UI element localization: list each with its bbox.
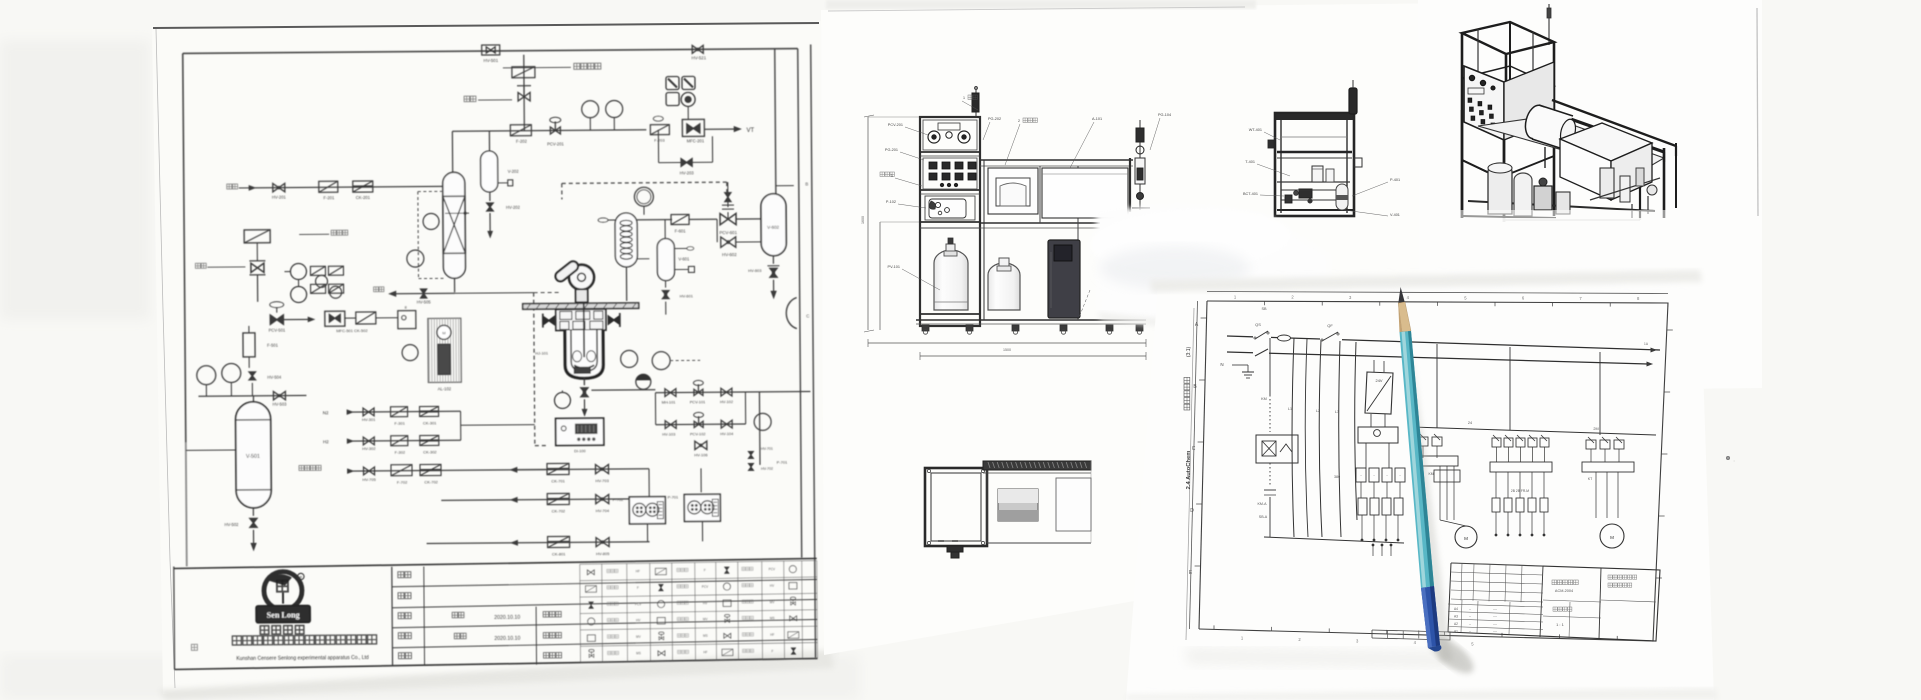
svg-text:MS: MS bbox=[636, 651, 641, 655]
svg-text:HV-702: HV-702 bbox=[761, 467, 773, 471]
svg-text:PCV: PCV bbox=[702, 585, 709, 589]
svg-text:HV-521: HV-521 bbox=[691, 55, 706, 60]
svg-text:QS: QS bbox=[1255, 322, 1261, 327]
svg-text:HV-202: HV-202 bbox=[506, 205, 521, 210]
svg-text:N2: N2 bbox=[323, 410, 329, 415]
svg-text:HV-102: HV-102 bbox=[720, 399, 733, 404]
svg-text:24: 24 bbox=[1468, 421, 1472, 425]
svg-text:CK-801: CK-801 bbox=[552, 551, 566, 556]
svg-text:P-701: P-701 bbox=[777, 460, 788, 465]
svg-text:F-702: F-702 bbox=[397, 480, 408, 485]
svg-text:HV-104: HV-104 bbox=[720, 431, 734, 436]
svg-text:HV-106: HV-106 bbox=[694, 452, 708, 457]
svg-text:HV-602: HV-602 bbox=[722, 252, 737, 257]
svg-text:Sen Long: Sen Long bbox=[267, 610, 301, 619]
svg-text:380: 380 bbox=[1334, 475, 1340, 479]
svg-text:2B 2B FR-M: 2B 2B FR-M bbox=[1511, 489, 1529, 493]
svg-text:HJ-101: HJ-101 bbox=[535, 351, 549, 356]
svg-text:V-602: V-602 bbox=[767, 225, 779, 230]
svg-text:HV-705: HV-705 bbox=[362, 477, 376, 482]
svg-text:HV-505: HV-505 bbox=[417, 299, 432, 304]
svg-text:2.4 AutoChem: 2.4 AutoChem bbox=[1186, 451, 1192, 490]
svg-text:HV-701: HV-701 bbox=[761, 447, 773, 451]
svg-text:M: M bbox=[1464, 536, 1468, 541]
svg-text:MS: MS bbox=[703, 634, 708, 638]
svg-text:ACM-2004: ACM-2004 bbox=[1555, 589, 1573, 593]
svg-text:SB: SB bbox=[1261, 307, 1267, 311]
svg-text:--: -- bbox=[1469, 622, 1471, 626]
svg-text:A3: A3 bbox=[1454, 615, 1458, 619]
svg-text:WT-401: WT-401 bbox=[1249, 128, 1262, 132]
svg-text:----: ---- bbox=[1493, 607, 1497, 611]
svg-text:HV-501: HV-501 bbox=[483, 58, 498, 63]
svg-text:CK-301: CK-301 bbox=[423, 420, 437, 425]
svg-text:F-601: F-601 bbox=[675, 228, 687, 233]
svg-text:B: B bbox=[805, 181, 808, 186]
svg-text:F: F bbox=[771, 649, 773, 653]
svg-text:A2: A2 bbox=[1454, 622, 1458, 626]
svg-text:HV-704: HV-704 bbox=[596, 508, 610, 513]
svg-text:--: -- bbox=[1469, 607, 1471, 611]
svg-text:F-201: F-201 bbox=[323, 195, 335, 200]
svg-text:DI-100: DI-100 bbox=[574, 449, 585, 453]
svg-text:2: 2 bbox=[1018, 119, 1020, 123]
svg-text:F-301: F-301 bbox=[394, 421, 405, 426]
svg-text:----: ---- bbox=[1493, 615, 1497, 619]
svg-text:1: 1 bbox=[963, 96, 965, 100]
svg-text:HV-805: HV-805 bbox=[596, 551, 610, 556]
svg-text:HV-601: HV-601 bbox=[680, 293, 694, 298]
svg-text:V-501: V-501 bbox=[246, 454, 260, 460]
svg-text:PCV-101: PCV-101 bbox=[690, 399, 706, 404]
svg-text:MH-101: MH-101 bbox=[662, 400, 676, 405]
svg-text:Kunshan Censere Senlong experi: Kunshan Censere Senlong experimental app… bbox=[236, 655, 369, 662]
svg-text:HV-502: HV-502 bbox=[224, 522, 239, 527]
svg-text:CK-302: CK-302 bbox=[423, 449, 437, 454]
svg-text:8: 8 bbox=[405, 306, 407, 310]
svg-text:HV-703: HV-703 bbox=[595, 478, 609, 483]
svg-text:VT: VT bbox=[747, 128, 755, 134]
svg-text:KT: KT bbox=[1588, 477, 1592, 481]
svg-text:HV-103: HV-103 bbox=[662, 432, 675, 437]
svg-text:PCV-201: PCV-201 bbox=[547, 141, 564, 146]
svg-text:P-401: P-401 bbox=[1390, 178, 1400, 182]
svg-text:HF: HF bbox=[703, 650, 707, 654]
svg-text:L3: L3 bbox=[1335, 410, 1339, 414]
svg-text:T-401: T-401 bbox=[1245, 160, 1255, 164]
svg-text:P-701: P-701 bbox=[668, 495, 679, 500]
svg-text:PCV-201: PCV-201 bbox=[888, 123, 903, 127]
svg-text:PG-201: PG-201 bbox=[885, 148, 898, 152]
svg-text:MS: MS bbox=[770, 616, 775, 620]
svg-text:AL-102: AL-102 bbox=[438, 386, 452, 391]
svg-text:V-401: V-401 bbox=[1390, 213, 1400, 217]
svg-text:PG-104: PG-104 bbox=[1158, 113, 1171, 117]
svg-text:V-601: V-601 bbox=[678, 256, 690, 261]
svg-text::: : bbox=[1733, 458, 1734, 463]
svg-text:F-202: F-202 bbox=[516, 139, 528, 144]
svg-text:1500: 1500 bbox=[1003, 348, 1011, 352]
svg-text:HV-603: HV-603 bbox=[748, 268, 762, 273]
svg-text:KM-A: KM-A bbox=[1258, 502, 1268, 506]
svg-text:H2: H2 bbox=[323, 439, 329, 444]
svg-text:HV-302: HV-302 bbox=[362, 446, 376, 451]
svg-text:PG-202: PG-202 bbox=[988, 117, 1001, 121]
svg-text:CK-201: CK-201 bbox=[356, 195, 371, 200]
svg-text:F-302: F-302 bbox=[395, 450, 406, 455]
svg-text:2020.10.10: 2020.10.10 bbox=[494, 615, 520, 621]
svg-text:A4: A4 bbox=[1454, 607, 1458, 611]
svg-text:HF: HF bbox=[770, 633, 774, 637]
svg-text:PCV-601: PCV-601 bbox=[719, 230, 737, 235]
svg-text:HV-504: HV-504 bbox=[267, 375, 282, 380]
svg-text:HV-201: HV-201 bbox=[272, 195, 287, 200]
svg-text:--: -- bbox=[1469, 615, 1471, 619]
svg-text:2M: 2M bbox=[1593, 427, 1598, 431]
svg-text:SB-A: SB-A bbox=[1259, 515, 1268, 519]
svg-text:----: ---- bbox=[1493, 630, 1497, 634]
svg-text:F-501: F-501 bbox=[267, 343, 279, 348]
svg-text:HV-301: HV-301 bbox=[362, 417, 376, 422]
svg-text:A1: A1 bbox=[1454, 630, 1458, 634]
svg-text:A-101: A-101 bbox=[1092, 117, 1102, 121]
svg-text:N: N bbox=[1220, 362, 1223, 367]
svg-text:P-102: P-102 bbox=[886, 200, 896, 204]
svg-text:KM: KM bbox=[1428, 472, 1433, 476]
svg-text:--: -- bbox=[1469, 630, 1471, 634]
svg-text:24V: 24V bbox=[1376, 378, 1383, 383]
svg-text:HV-203: HV-203 bbox=[680, 170, 695, 175]
svg-text:F: F bbox=[704, 568, 706, 572]
svg-text:L2: L2 bbox=[1316, 409, 1320, 413]
svg-text:F-203: F-203 bbox=[654, 138, 665, 143]
svg-text:MFC-501 CK-502: MFC-501 CK-502 bbox=[336, 328, 368, 333]
svg-text:2020.10.10: 2020.10.10 bbox=[494, 636, 520, 642]
svg-text:HF: HF bbox=[636, 569, 640, 573]
svg-text:PCV-501: PCV-501 bbox=[269, 328, 286, 333]
svg-text:(3:1): (3:1) bbox=[1186, 347, 1192, 358]
svg-text:F: F bbox=[637, 586, 639, 590]
svg-text:PCV: PCV bbox=[769, 567, 776, 571]
svg-text:CK-702: CK-702 bbox=[552, 508, 566, 513]
svg-text:M: M bbox=[1610, 535, 1614, 540]
svg-text:1600: 1600 bbox=[861, 216, 865, 224]
svg-text:CK-702: CK-702 bbox=[424, 479, 438, 484]
svg-text:----: ---- bbox=[1493, 622, 1497, 626]
svg-text:D: D bbox=[1190, 508, 1194, 514]
svg-text:PV-101: PV-101 bbox=[888, 265, 900, 269]
svg-text:CK-701: CK-701 bbox=[551, 478, 565, 483]
svg-text:1 : 1: 1 : 1 bbox=[1556, 622, 1565, 627]
svg-text:MFC-201: MFC-201 bbox=[687, 138, 705, 143]
svg-text:V-202: V-202 bbox=[508, 169, 520, 174]
svg-text:BCT-401: BCT-401 bbox=[1243, 192, 1258, 196]
svg-text:QF: QF bbox=[1327, 323, 1333, 328]
svg-text:L1: L1 bbox=[1288, 407, 1292, 411]
svg-text:PCV: PCV bbox=[635, 602, 642, 606]
svg-text:PCV-102: PCV-102 bbox=[690, 431, 706, 436]
svg-text:C: C bbox=[1192, 446, 1196, 452]
svg-text:KM: KM bbox=[1261, 397, 1267, 401]
svg-text:M: M bbox=[442, 330, 445, 335]
svg-text:HV-503: HV-503 bbox=[272, 402, 287, 407]
svg-text:P-702: P-702 bbox=[613, 497, 624, 502]
